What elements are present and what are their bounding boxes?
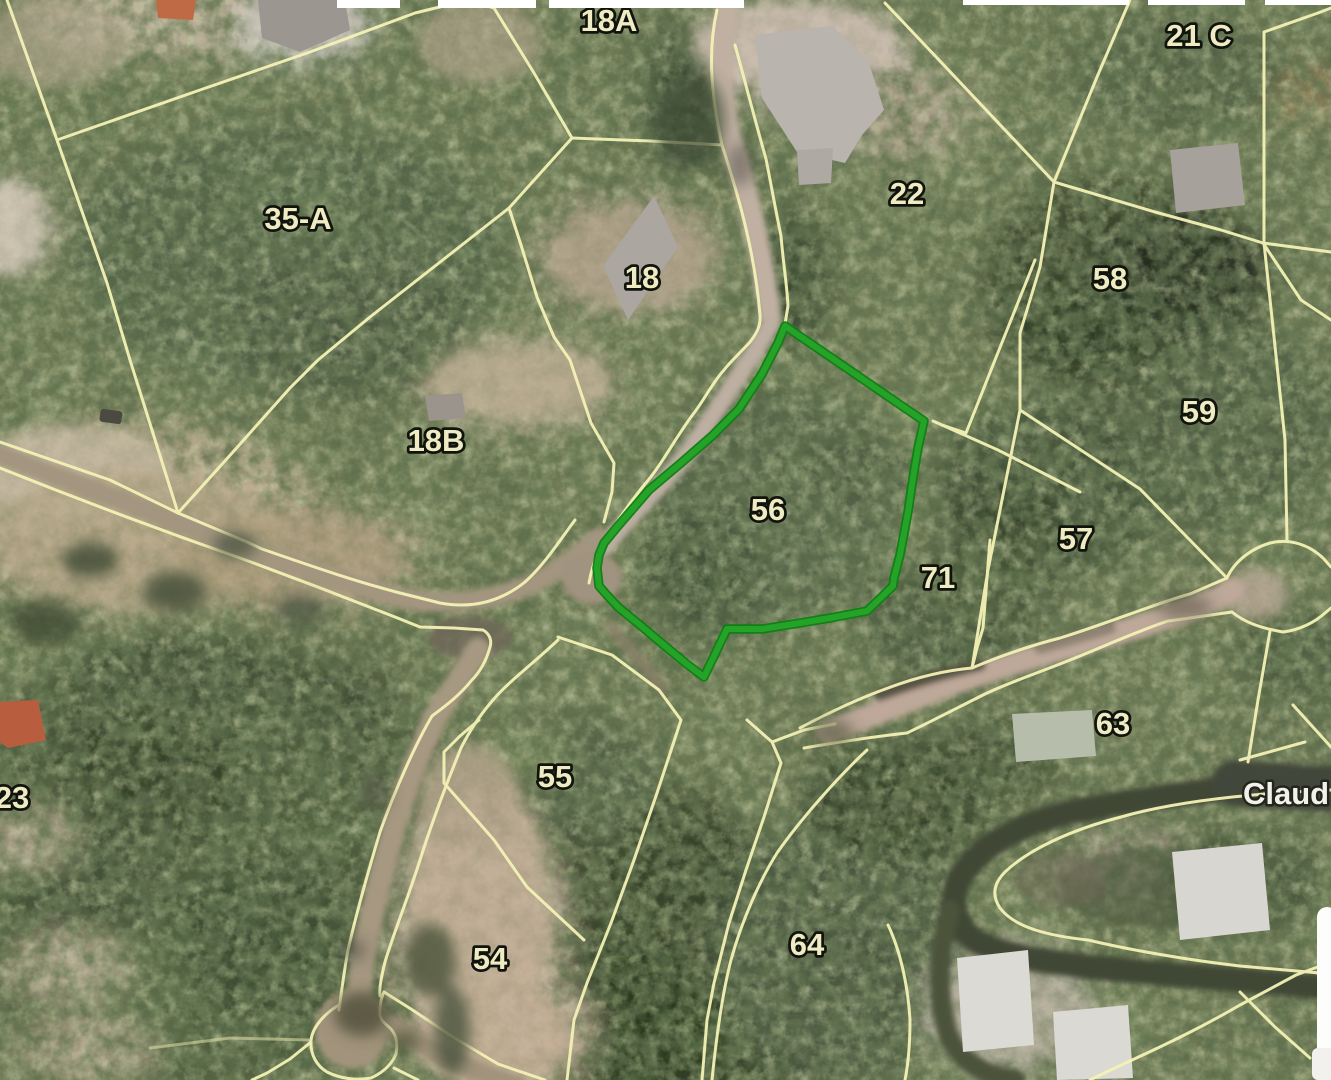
svg-text:18B: 18B bbox=[408, 423, 465, 458]
svg-text:22: 22 bbox=[890, 176, 924, 211]
svg-text:23: 23 bbox=[0, 780, 29, 815]
svg-text:64: 64 bbox=[790, 927, 825, 962]
svg-text:35-A: 35-A bbox=[264, 201, 331, 236]
svg-text:71: 71 bbox=[921, 560, 955, 595]
svg-text:58: 58 bbox=[1093, 261, 1127, 296]
svg-text:56: 56 bbox=[751, 492, 785, 527]
svg-text:21 C: 21 C bbox=[1166, 18, 1231, 53]
svg-text:Claud: Claud bbox=[1243, 776, 1329, 811]
svg-text:59: 59 bbox=[1182, 394, 1216, 429]
svg-text:63: 63 bbox=[1096, 706, 1130, 741]
svg-text:54: 54 bbox=[473, 941, 508, 976]
svg-text:55: 55 bbox=[538, 759, 572, 794]
svg-text:18: 18 bbox=[625, 260, 659, 295]
svg-text:57: 57 bbox=[1059, 521, 1093, 556]
svg-text:18A: 18A bbox=[581, 3, 638, 38]
